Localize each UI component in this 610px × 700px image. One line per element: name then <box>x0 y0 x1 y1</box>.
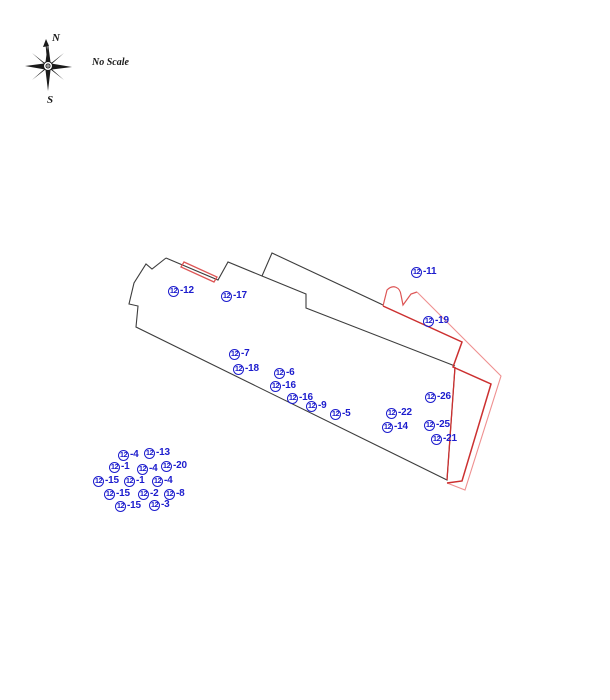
marker-label: 12-25 <box>424 419 450 431</box>
red-canopy-bumps <box>383 287 417 306</box>
unit-badge: 12 <box>425 392 436 403</box>
unit-badge: 12 <box>221 291 232 302</box>
point-number: -17 <box>233 290 247 302</box>
unit-badge: 12 <box>423 316 434 327</box>
point-number: -1 <box>121 461 130 473</box>
marker-label: 12-18 <box>233 363 259 375</box>
marker-label: 12-15 <box>115 500 141 512</box>
unit-badge: 12 <box>161 461 172 472</box>
point-number: -8 <box>176 488 185 500</box>
unit-badge: 12 <box>330 409 341 420</box>
unit-badge: 12 <box>431 434 442 445</box>
unit-badge: 12 <box>152 476 163 487</box>
point-number: -1 <box>136 475 145 487</box>
unit-badge: 12 <box>168 286 179 297</box>
unit-badge: 12 <box>104 489 115 500</box>
marker-label: 12-5 <box>330 408 351 420</box>
unit-badge: 12 <box>93 476 104 487</box>
point-number: -26 <box>437 391 451 403</box>
unit-badge: 12 <box>382 422 393 433</box>
point-number: -21 <box>443 433 457 445</box>
point-number: -14 <box>394 421 408 433</box>
drawing-canvas: N S No Scale 12-1112-1212- <box>0 0 610 700</box>
point-number: -20 <box>173 460 187 472</box>
marker-label: 12-1 <box>109 461 130 473</box>
marker-label: 12-4 <box>118 449 139 461</box>
point-number: -6 <box>286 367 295 379</box>
marker-label: 12-15 <box>93 475 119 487</box>
point-number: -19 <box>435 315 449 327</box>
point-number: -9 <box>318 400 327 412</box>
unit-badge: 12 <box>124 476 135 487</box>
marker-label: 12-14 <box>382 421 408 433</box>
marker-label: 12-20 <box>161 460 187 472</box>
marker-label: 12-15 <box>104 488 130 500</box>
compass-south-label: S <box>47 94 53 106</box>
point-number: -5 <box>342 408 351 420</box>
point-number: -25 <box>436 419 450 431</box>
point-number: -3 <box>161 499 170 511</box>
point-number: -4 <box>164 475 173 487</box>
unit-badge: 12 <box>118 450 129 461</box>
marker-label: 12-26 <box>425 391 451 403</box>
unit-badge: 12 <box>274 368 285 379</box>
annex-parallelogram-path <box>262 253 383 305</box>
unit-badge: 12 <box>287 393 298 404</box>
marker-label: 12-13 <box>144 447 170 459</box>
marker-label: 12-4 <box>152 475 173 487</box>
marker-label: 12-22 <box>386 407 412 419</box>
unit-badge: 12 <box>386 408 397 419</box>
point-number: -13 <box>156 447 170 459</box>
unit-badge: 12 <box>424 420 435 431</box>
point-number: -12 <box>180 285 194 297</box>
point-number: -11 <box>423 266 436 278</box>
unit-badge: 12 <box>233 364 244 375</box>
marker-label: 12-6 <box>274 367 295 379</box>
compass-rose: N S <box>25 32 72 106</box>
unit-badge: 12 <box>115 501 126 512</box>
point-number: -22 <box>398 407 412 419</box>
unit-badge: 12 <box>144 448 155 459</box>
marker-label: 12-1 <box>124 475 145 487</box>
point-number: -15 <box>116 488 130 500</box>
marker-label: 12-7 <box>229 348 250 360</box>
scale-note: No Scale <box>91 57 130 68</box>
unit-badge: 12 <box>109 462 120 473</box>
unit-badge: 12 <box>149 500 160 511</box>
unit-badge: 12 <box>138 489 149 500</box>
marker-label: 12-12 <box>168 285 194 297</box>
marker-label: 12-16 <box>270 380 296 392</box>
marker-label: 12-11 <box>411 266 436 278</box>
point-number: -15 <box>127 500 141 512</box>
point-number: -15 <box>105 475 119 487</box>
unit-badge: 12 <box>411 267 422 278</box>
compass-north-label: N <box>51 32 61 44</box>
unit-badge: 12 <box>306 401 317 412</box>
point-number: -7 <box>241 348 250 360</box>
site-plan-drawing: N S No Scale <box>0 0 610 700</box>
marker-label: 12-3 <box>149 499 170 511</box>
unit-badge: 12 <box>229 349 240 360</box>
unit-badge: 12 <box>137 464 148 475</box>
point-number: -4 <box>130 449 139 461</box>
marker-label: 12-17 <box>221 290 247 302</box>
marker-label: 12-21 <box>431 433 457 445</box>
point-number: -16 <box>282 380 296 392</box>
marker-label: 12-4 <box>137 463 158 475</box>
marker-label: 12-9 <box>306 400 327 412</box>
unit-badge: 12 <box>270 381 281 392</box>
unit-badge: 12 <box>164 489 175 500</box>
point-number: -18 <box>245 363 259 375</box>
north-arrow-icon <box>25 39 72 91</box>
marker-label: 12-19 <box>423 315 449 327</box>
point-number: -4 <box>149 463 158 475</box>
